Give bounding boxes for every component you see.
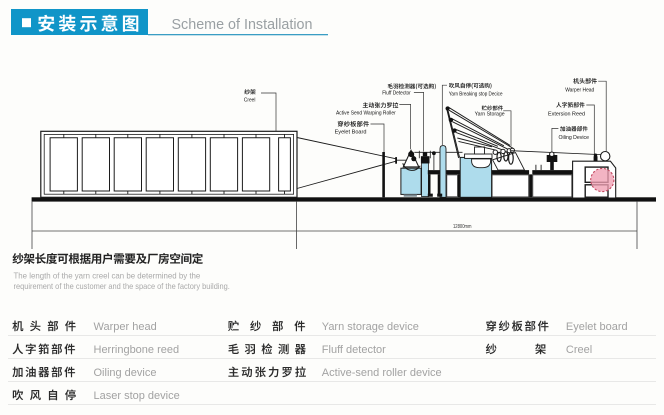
- svg-text:Yarn Breaking stop Decice: Yarn Breaking stop Decice: [449, 91, 503, 97]
- svg-text:12800mm: 12800mm: [453, 224, 472, 230]
- svg-text:Yarn Storage: Yarn Storage: [475, 112, 505, 118]
- svg-text:Active Send Warping Roller: Active Send Warping Roller: [336, 111, 396, 117]
- svg-text:The length of the yarn creel c: The length of the yarn creel can be dete…: [14, 271, 201, 281]
- svg-text:Eyelet Board: Eyelet Board: [335, 130, 367, 136]
- svg-text:Creel: Creel: [566, 344, 592, 356]
- svg-text:Herringbone reed: Herringbone reed: [94, 344, 180, 356]
- svg-text:Oiling device: Oiling device: [94, 367, 157, 379]
- svg-text:Scheme of Installation: Scheme of Installation: [172, 17, 313, 33]
- svg-text:Warper Head: Warper Head: [565, 88, 594, 94]
- svg-text:Active-send roller device: Active-send roller device: [322, 367, 442, 379]
- svg-text:Fluff Detector: Fluff Detector: [382, 91, 411, 97]
- svg-text:Oiling Device: Oiling Device: [559, 135, 590, 141]
- svg-text:Extersion Reed: Extersion Reed: [548, 111, 585, 117]
- svg-text:requirement of the customer an: requirement of the customer and the spac…: [14, 281, 230, 291]
- svg-text:Laser stop device: Laser stop device: [94, 390, 180, 402]
- svg-text:Eyelet board: Eyelet board: [566, 321, 628, 333]
- svg-text:Yarn storage device: Yarn storage device: [322, 321, 419, 333]
- svg-text:Fluff detector: Fluff detector: [322, 344, 386, 356]
- svg-text:Creel: Creel: [244, 97, 256, 103]
- svg-text:Warper head: Warper head: [94, 321, 157, 333]
